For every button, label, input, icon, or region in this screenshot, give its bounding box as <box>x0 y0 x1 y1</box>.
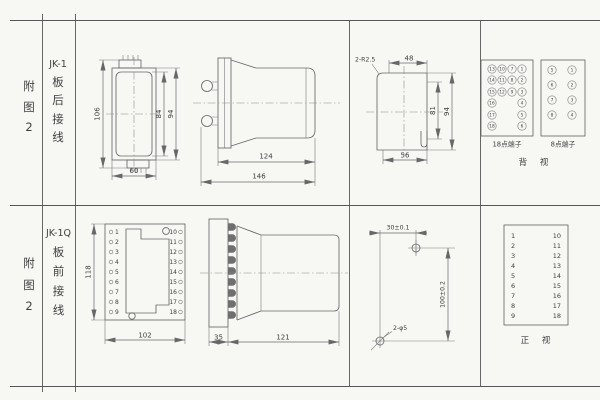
jk1-panel-cutout: 2-R2.5 48 81 94 56 <box>355 55 456 165</box>
dim-width: 102 <box>138 332 151 340</box>
terminal-label: 6 <box>115 279 119 286</box>
list-right-column: 10 11 12 13 14 15 16 17 18 <box>553 232 561 320</box>
dim-width: 60 <box>130 167 139 175</box>
dim-body-length: 124 <box>259 153 273 161</box>
jk1q-side-view: 35 121 <box>200 219 348 346</box>
dim-inner-height: 84 <box>155 109 163 118</box>
dim-vertical: 100±0.2 <box>440 281 447 308</box>
terminal-label: 10 <box>169 229 177 236</box>
terminal-number: 11 <box>499 78 505 84</box>
list-left-column: 1 2 3 4 5 6 7 8 9 <box>511 232 515 320</box>
terminal-label: 13 <box>169 259 177 266</box>
terminal-number: 15 <box>489 90 495 96</box>
terminal-number: 7 <box>551 98 554 104</box>
list-number: 5 <box>511 272 515 280</box>
terminal-number: 3 <box>521 90 524 96</box>
list-number: 7 <box>511 292 515 300</box>
jk1-front-view: 106 84 94 60 <box>94 55 181 180</box>
drill-template: 30±0.1 100±0.2 2-φ5 <box>369 225 455 351</box>
terminal-number: 16 <box>489 101 495 107</box>
jk1q-front-view: 1 2 3 4 5 6 7 8 9 10 11 12 13 14 15 16 1… <box>85 224 186 344</box>
technical-drawing-sheet: 附 图 2 JK-1 板 后 接 线 附 图 2 JK-1Q 板 前 接 线 <box>0 0 600 400</box>
front-left-terminals: 1 2 3 4 5 6 7 8 9 <box>109 229 119 316</box>
dim-body: 121 <box>276 334 289 342</box>
list-number: 16 <box>553 292 561 300</box>
block18-circles: 13 14 15 16 17 18 10 11 12 7 8 9 1 2 3 4… <box>488 65 526 130</box>
dim-horizontal: 30±0.1 <box>387 225 410 232</box>
terminal-label: 8 <box>115 299 119 306</box>
dim-total-length: 146 <box>252 173 266 181</box>
terminal-number: 2 <box>521 78 524 84</box>
terminal-label: 3 <box>115 249 119 256</box>
list-number: 8 <box>511 302 515 310</box>
terminal-label: 15 <box>169 279 177 286</box>
list-number: 12 <box>553 252 561 260</box>
dim-height: 118 <box>85 265 93 278</box>
terminal-label: 7 <box>115 289 119 296</box>
terminal-number: 6 <box>551 83 554 89</box>
list-number: 18 <box>553 312 561 320</box>
terminal-label: 18 <box>169 309 177 316</box>
terminal-number: 2 <box>571 83 574 89</box>
dim-body-height: 94 <box>167 109 175 118</box>
terminal-number: 6 <box>521 124 524 130</box>
terminal-number: 14 <box>489 78 495 84</box>
terminal-number: 8 <box>511 78 514 84</box>
terminal-label: 5 <box>115 269 119 276</box>
rear-terminal-blocks: 13 14 15 16 17 18 10 11 12 7 8 9 1 2 3 4… <box>481 60 585 168</box>
terminal-number: 5 <box>551 68 554 74</box>
terminal-number: 7 <box>511 67 514 73</box>
list-number: 9 <box>511 312 515 320</box>
drawing-canvas: 106 84 94 60 <box>0 0 600 400</box>
front-view-label: 正 视 <box>521 335 556 346</box>
list-number: 6 <box>511 282 515 290</box>
dim-top-width: 48 <box>405 55 414 63</box>
hole-label: 2-φ5 <box>393 325 407 332</box>
terminal-number: 1 <box>521 67 524 73</box>
terminal-label: 4 <box>115 259 119 266</box>
terminal-number: 5 <box>521 113 524 119</box>
terminal-number: 13 <box>489 67 495 73</box>
list-number: 17 <box>553 302 561 310</box>
terminal-label: 2 <box>115 239 119 246</box>
dim-width: 56 <box>401 152 410 160</box>
list-number: 2 <box>511 242 515 250</box>
terminal-number: 10 <box>499 67 505 73</box>
terminal-label: 11 <box>169 239 177 246</box>
mount-hole <box>129 313 135 319</box>
list-number: 15 <box>553 282 561 290</box>
terminal-number: 4 <box>571 113 574 119</box>
list-number: 1 <box>511 232 515 240</box>
block8-caption: 8点端子 <box>551 140 576 149</box>
terminal-list: 1 2 3 4 5 6 7 8 9 10 11 12 13 14 15 16 1… <box>504 225 568 346</box>
terminal-label: 12 <box>169 249 177 256</box>
terminal-number: 9 <box>511 90 514 96</box>
dim-total-height: 106 <box>94 107 102 121</box>
terminal-number: 1 <box>571 68 574 74</box>
list-number: 3 <box>511 252 515 260</box>
terminal-number: 8 <box>551 113 554 119</box>
terminal-label: 9 <box>115 309 119 316</box>
list-number: 4 <box>511 262 515 270</box>
block8-circles: 5 6 7 8 1 2 3 4 <box>548 66 576 119</box>
jk1-side-view: 124 146 <box>193 58 340 186</box>
list-number: 13 <box>553 262 561 270</box>
list-number: 10 <box>553 232 561 240</box>
terminal-number: 17 <box>489 113 495 119</box>
terminal-block-8 <box>541 60 585 136</box>
corner-radius-label: 2-R2.5 <box>355 57 375 64</box>
front-right-terminals: 10 11 12 13 14 15 16 17 18 <box>169 229 182 316</box>
dim-inner-height: 81 <box>429 106 437 115</box>
dim-height: 94 <box>443 107 451 116</box>
terminal-number: 4 <box>521 101 524 107</box>
terminal-number: 12 <box>499 90 505 96</box>
list-number: 11 <box>553 242 561 250</box>
terminal-label: 17 <box>169 299 177 306</box>
rear-view-label: 背 视 <box>519 157 554 168</box>
terminal-label: 1 <box>115 229 119 236</box>
block18-caption: 18点端子 <box>492 140 521 149</box>
terminal-label: 16 <box>169 289 177 296</box>
terminal-number: 3 <box>571 98 574 104</box>
terminal-number: 18 <box>489 124 495 130</box>
dim-plate: 35 <box>214 334 223 342</box>
terminal-label: 14 <box>169 269 177 276</box>
terminal-screws <box>228 223 236 319</box>
list-number: 14 <box>553 272 561 280</box>
